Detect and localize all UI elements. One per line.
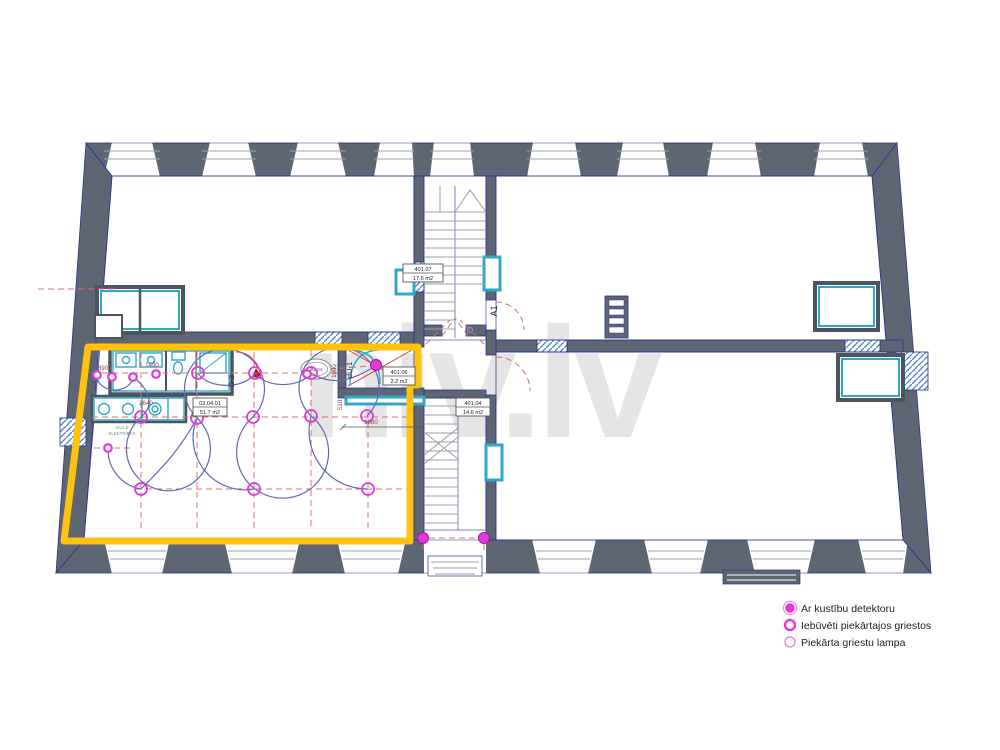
svg-text:4A/1.S: 4A/1.S [115, 425, 128, 430]
svg-text:510: 510 [337, 399, 344, 410]
pendant-lamp-icon [785, 637, 795, 647]
room-label-stair-top: 401.07 17.6 m2 [403, 264, 443, 282]
recessed-lamp-symbol [93, 371, 101, 379]
motion-detector-symbol [479, 533, 490, 544]
svg-text:51.7 m2: 51.7 m2 [200, 410, 220, 416]
motion-detector-symbol [371, 360, 382, 371]
svg-text:17.6 m2: 17.6 m2 [413, 276, 433, 282]
side-entrance-steps [723, 570, 800, 584]
recessed-lamp-symbol [152, 370, 160, 378]
motion-detector-icon [785, 603, 795, 613]
legend-item-recessed: Iebūvēti piekārtajos griestos [785, 620, 931, 632]
svg-text:1860: 1860 [364, 419, 378, 426]
room-label-main: 02.04.01 51.7 m2 [193, 398, 227, 416]
svg-text:14.6 m2: 14.6 m2 [463, 410, 483, 416]
entrance-steps [428, 556, 482, 576]
svg-text:ELEKTRĪBAS: ELEKTRĪBAS [108, 431, 135, 436]
svg-text:401.04: 401.04 [464, 401, 481, 407]
floorplan-drawing: niv.lv [0, 0, 1000, 750]
room-label-vestibule: 401.06 2.2 m2 [383, 367, 415, 385]
recessed-lamp-symbol [303, 370, 311, 378]
top-right-niche [815, 283, 878, 330]
motion-detector-symbol [418, 533, 429, 544]
recessed-lamp-icon [785, 620, 795, 630]
bottom-right-niche [838, 355, 903, 400]
svg-text:401.06: 401.06 [390, 370, 407, 376]
legend-item-pendant: Piekārta griestu lampa [785, 637, 906, 649]
recessed-lamp-symbol [108, 373, 116, 381]
top-left-niche [95, 287, 183, 338]
svg-text:02.04.01: 02.04.01 [199, 401, 221, 407]
recessed-lamp-symbol [129, 373, 137, 381]
svg-text:Ar kustību detektoru: Ar kustību detektoru [801, 603, 895, 615]
chimney-column [605, 296, 628, 338]
svg-text:2640: 2640 [139, 400, 153, 407]
recessed-lamp-symbol [104, 444, 112, 452]
room-label-stair-bottom: 401.04 14.6 m2 [456, 398, 490, 416]
svg-text:1490: 1490 [145, 362, 159, 369]
kitchen-block [110, 348, 232, 394]
svg-text:dU-1: dU-1 [345, 362, 354, 378]
svg-text:1000: 1000 [331, 364, 338, 378]
svg-text:2.2 m2: 2.2 m2 [390, 379, 407, 385]
floorplan-page: niv.lv [0, 0, 1000, 750]
svg-text:Iebūvēti piekārtajos griestos: Iebūvēti piekārtajos griestos [801, 620, 931, 632]
svg-text:D-3: D-3 [227, 375, 236, 387]
svg-text:890: 890 [98, 365, 109, 372]
svg-text:A1: A1 [489, 305, 499, 316]
svg-text:Piekārta griestu lampa: Piekārta griestu lampa [801, 637, 906, 649]
legend-item-motion: Ar kustību detektoru [783, 601, 895, 615]
svg-text:401.07: 401.07 [414, 267, 431, 273]
